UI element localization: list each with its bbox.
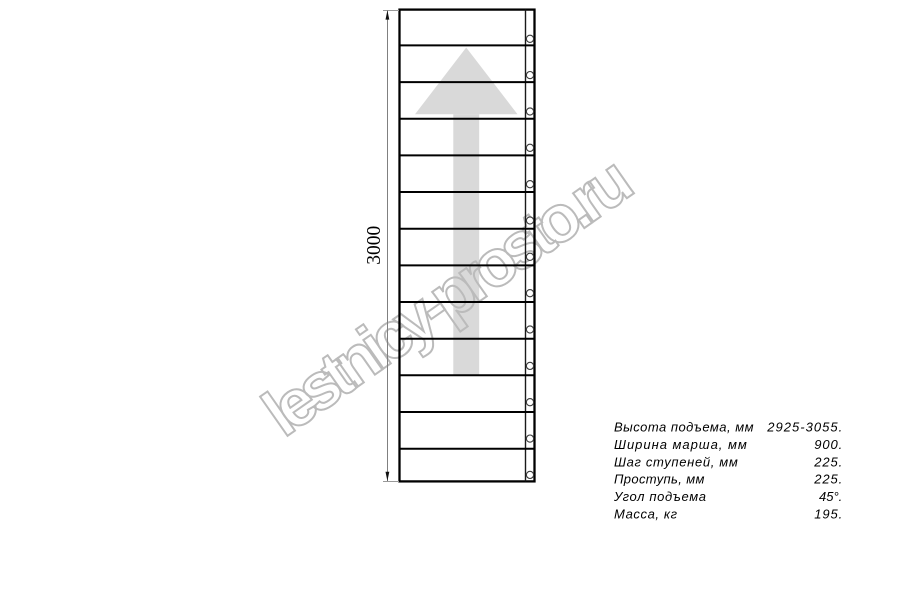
svg-text:Высота подъема, мм: Высота подъема, мм bbox=[614, 420, 754, 435]
svg-text:225.: 225. bbox=[813, 454, 842, 469]
svg-text:Масса, кг: Масса, кг bbox=[614, 506, 678, 521]
svg-text:225.: 225. bbox=[813, 472, 842, 487]
svg-text:900.: 900. bbox=[814, 437, 842, 452]
svg-text:Угол подъема: Угол подъема bbox=[613, 489, 706, 504]
svg-text:2925-3055.: 2925-3055. bbox=[766, 420, 842, 435]
svg-text:45°.: 45°. bbox=[819, 489, 842, 504]
svg-text:195.: 195. bbox=[814, 506, 842, 521]
svg-text:Шаг ступеней, мм: Шаг ступеней, мм bbox=[614, 454, 738, 469]
svg-text:Проступь, мм: Проступь, мм bbox=[614, 472, 704, 487]
svg-text:Ширина марша, мм: Ширина марша, мм bbox=[614, 437, 747, 452]
svg-text:3000: 3000 bbox=[364, 226, 385, 265]
